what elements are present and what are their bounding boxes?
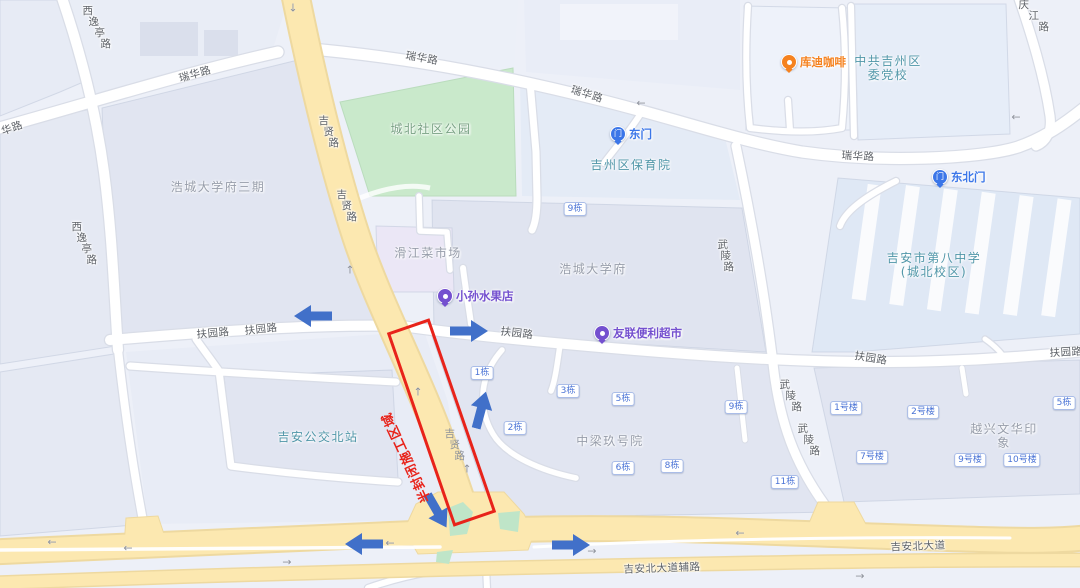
lane-direction-arrow-icon: ↓	[288, 2, 297, 15]
lane-direction-arrow-icon: →	[282, 556, 291, 569]
lane-direction-arrow-icon: ←	[123, 542, 132, 555]
road-label: 瑞华路	[569, 82, 605, 106]
road-label: 瑞华路	[177, 62, 213, 86]
building-badge: 2栋	[504, 421, 527, 435]
building-badge: 5栋	[612, 392, 635, 406]
lane-direction-arrow-icon: ←	[735, 527, 744, 540]
poi-marker-icon	[781, 54, 797, 70]
road-label: 武陵路	[797, 424, 809, 457]
road-label: 瑞华路	[841, 148, 875, 165]
area-label: 吉安公交北站	[277, 430, 358, 444]
building-badge: 8栋	[661, 459, 684, 473]
lane-direction-arrow-icon: ←	[385, 537, 394, 550]
area-label: 浩城大学府	[559, 262, 627, 276]
building-badge: 9号楼	[954, 453, 986, 467]
road-label: 扶园路	[244, 320, 278, 338]
poi-marker-icon: 门	[932, 169, 948, 185]
lane-direction-arrow-icon: ←	[636, 97, 645, 110]
road-label: 西逸亭路	[71, 222, 83, 266]
construction-map-screenshot: 华路瑞华路瑞华路瑞华路瑞华路西逸亭路西逸亭路庆江路吉贤路吉贤路吉贤路扶园路扶园路…	[0, 0, 1080, 588]
lane-direction-arrow-icon: →	[587, 545, 596, 558]
building-badge: 10号楼	[1003, 453, 1040, 467]
road-label: 庆江路	[1018, 0, 1030, 33]
building-badge: 5栋	[1053, 396, 1076, 410]
road-label: 武陵路	[779, 380, 791, 413]
poi-label: 友联便利超市	[613, 325, 682, 341]
road-label: 吉贤路	[318, 116, 330, 149]
road-label: 西逸亭路	[82, 6, 94, 50]
traffic-direction-arrow	[465, 389, 496, 431]
area-label: 城北社区公园	[390, 122, 471, 136]
area-label: 吉州区保育院	[590, 158, 671, 172]
building-badge: 7号楼	[856, 450, 888, 464]
building-badge: 9栋	[725, 400, 748, 414]
building-badge: 11栋	[771, 475, 799, 489]
building-badge: 1栋	[471, 366, 494, 380]
road-label: 扶园路	[854, 348, 889, 368]
poi-marker-icon	[437, 288, 453, 304]
lane-direction-arrow-icon: →	[855, 570, 864, 583]
lane-direction-arrow-icon: ↑	[345, 264, 354, 277]
building-badge: 2号楼	[907, 405, 939, 419]
road-label: 扶园路	[500, 324, 535, 343]
lane-direction-arrow-icon: ←	[47, 536, 56, 549]
area-label: 浩城大学府三期	[171, 180, 266, 194]
building-badge: 9栋	[564, 202, 587, 216]
area-label: 中梁玖号院	[576, 434, 644, 448]
road-label: 吉安北大道	[890, 538, 945, 555]
area-label: 滑江菜市场	[394, 246, 462, 260]
road-label: 吉贤路	[336, 190, 348, 223]
area-label: 越兴文华印象	[966, 422, 1042, 450]
road-label: 扶园路	[1049, 344, 1080, 361]
map-annotation-layer: 华路瑞华路瑞华路瑞华路瑞华路西逸亭路西逸亭路庆江路吉贤路吉贤路吉贤路扶园路扶园路…	[0, 0, 1080, 588]
poi-label: 库迪咖啡	[800, 54, 846, 70]
traffic-direction-arrow	[294, 305, 332, 327]
road-label: 瑞华路	[404, 48, 439, 69]
traffic-direction-arrow	[552, 534, 590, 556]
traffic-direction-arrow	[345, 533, 383, 555]
area-label: 中共吉州区 委党校	[854, 54, 922, 82]
poi-label: 东门	[629, 126, 652, 142]
building-badge: 6栋	[612, 461, 635, 475]
area-label: 吉安市第八中学 (城北校区)	[887, 251, 982, 279]
poi-label: 东北门	[951, 169, 986, 185]
road-label: 武陵路	[717, 240, 729, 273]
building-badge: 1号楼	[830, 401, 862, 415]
road-label: 吉安北大道辅路	[623, 559, 700, 577]
road-label: 扶园路	[196, 324, 230, 342]
traffic-direction-arrow	[450, 320, 488, 342]
lane-direction-arrow-icon: ←	[1011, 111, 1020, 124]
poi-marker-icon: 门	[610, 126, 626, 142]
poi-label: 小孙水果店	[456, 288, 514, 304]
road-label: 华路	[0, 117, 25, 139]
building-badge: 3栋	[557, 384, 580, 398]
poi-marker-icon	[594, 325, 610, 341]
